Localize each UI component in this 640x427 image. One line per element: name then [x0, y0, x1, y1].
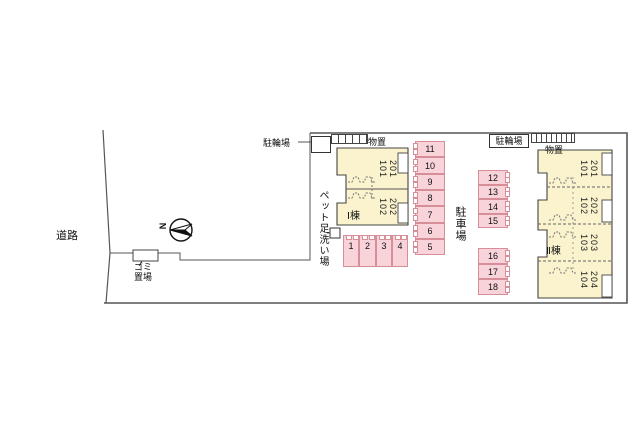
- stall-number: 14: [488, 202, 498, 212]
- stall-number: 4: [397, 241, 402, 251]
- pet-wash-label: ペット足洗い場: [315, 190, 330, 286]
- stall-number: 16: [488, 251, 498, 261]
- bicycle-parking-box-left: [311, 136, 331, 153]
- parking-stall: 13: [478, 185, 508, 199]
- parking-stall: 17: [478, 264, 508, 279]
- stall-number: 5: [427, 242, 432, 252]
- road-boundary-line: [103, 130, 110, 303]
- parking-stall: 8: [415, 190, 445, 206]
- room-label: 204 104: [579, 268, 599, 292]
- parking-stall: 16: [478, 248, 508, 264]
- parking-stall: 7: [415, 206, 445, 223]
- stall-number: 6: [427, 226, 432, 236]
- bicycle-parking-label-left: 駐輪場: [263, 136, 290, 149]
- stall-number: 12: [488, 173, 498, 183]
- building-2-entry-notch: [602, 153, 612, 175]
- parking-stall: 3: [376, 235, 392, 267]
- building-1-label: Ⅰ棟: [347, 207, 360, 222]
- garbage-box: [133, 250, 158, 261]
- stall-number: 9: [427, 177, 432, 187]
- stall-number: 7: [427, 210, 432, 220]
- stall-number: 8: [427, 193, 432, 203]
- building-1-entry-notch: [398, 153, 408, 173]
- storage-label-left: 物置: [368, 135, 386, 148]
- stall-number: 15: [488, 216, 498, 226]
- garbage-label: ゴミ 置場: [126, 262, 160, 282]
- parking-stall: 1: [343, 235, 359, 267]
- road-label: 道路: [56, 227, 78, 243]
- inner-boundary-line: [110, 133, 310, 260]
- storage-rack-left: [331, 134, 368, 144]
- parking-stall: 9: [415, 174, 445, 190]
- stall-number: 10: [425, 161, 435, 171]
- parking-stall: 14: [478, 199, 508, 214]
- room-label: 201 101: [378, 157, 398, 181]
- pet-wash-station: [330, 228, 340, 238]
- storage-rack-right: [531, 133, 575, 143]
- parking-stall: 5: [415, 239, 445, 255]
- parking-stall: 11: [415, 141, 445, 157]
- room-label: 202 102: [579, 194, 599, 218]
- building-2-label: Ⅱ棟: [546, 242, 561, 257]
- parking-stall: 6: [415, 223, 445, 239]
- parking-stall: 10: [415, 157, 445, 174]
- stall-number: 2: [365, 241, 370, 251]
- building-2-entry-notch: [602, 200, 612, 222]
- north-compass-icon: N: [158, 219, 192, 241]
- building-1-entry-notch: [398, 203, 408, 223]
- compass-north-letter: N: [158, 223, 168, 230]
- parking-stall: 15: [478, 214, 508, 228]
- stall-number: 1: [348, 241, 353, 251]
- room-label: 202 102: [378, 195, 398, 219]
- stall-number: 17: [488, 267, 498, 277]
- bicycle-parking-label-right: 駐輪場: [489, 134, 529, 148]
- parking-stall: 2: [359, 235, 376, 267]
- stall-number: 18: [488, 282, 498, 292]
- stall-number: 11: [425, 144, 434, 154]
- storage-label-right: 物置: [545, 143, 563, 156]
- parking-area-label: 駐車場: [452, 206, 468, 246]
- room-label: 203 103: [579, 231, 599, 255]
- stall-number: 13: [488, 187, 498, 197]
- site-plan: N 道路 ゴミ 置場 駐輪場 物置: [0, 0, 640, 427]
- building-2-entry-notch: [602, 275, 612, 297]
- room-label: 201 101: [579, 157, 599, 181]
- parking-stall: 12: [478, 170, 508, 185]
- parking-stall: 18: [478, 279, 508, 295]
- parking-stall: 4: [392, 235, 408, 267]
- stall-number: 3: [381, 241, 386, 251]
